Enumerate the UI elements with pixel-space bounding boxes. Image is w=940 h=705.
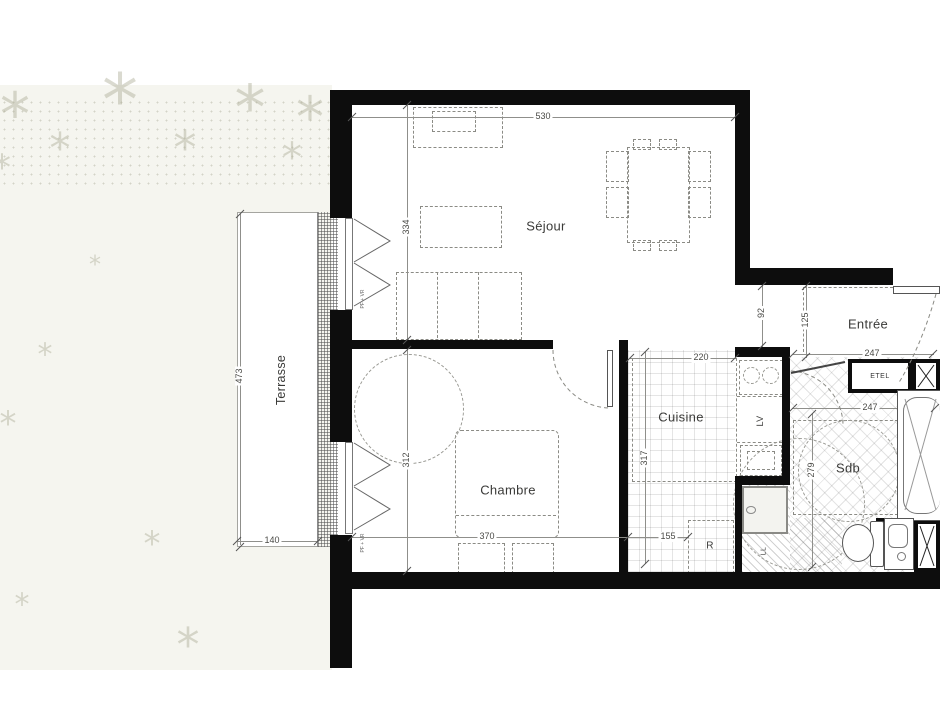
sofa-seat-divider	[437, 272, 438, 338]
vegetation-symbol: *	[144, 533, 161, 557]
bathtub-inner	[903, 397, 940, 514]
door-arc	[553, 350, 611, 408]
room-label-chambre: Chambre	[480, 483, 536, 498]
dining-chair	[659, 240, 677, 251]
fridge-label: R	[706, 541, 714, 552]
dining-chair	[688, 187, 711, 218]
chambre-door-leaf	[607, 350, 613, 407]
nightstand	[458, 543, 505, 574]
dining-chair	[606, 151, 629, 182]
vegetation-symbol: *	[174, 132, 197, 164]
dim-label-cuisine-width: 220	[691, 353, 710, 363]
dim-label-passage: 92	[757, 306, 767, 320]
washer-label: LL	[761, 547, 768, 555]
vegetation-symbol: *	[0, 155, 11, 180]
room-label-cuisine: Cuisine	[658, 410, 703, 425]
dim-label-terrasse-width: 140	[262, 536, 281, 546]
vegetation-symbol: *	[0, 94, 30, 136]
dim-label-sdb-width: 247	[860, 403, 879, 413]
room-label-terrasse: Terrasse	[274, 355, 288, 405]
washbasin-drain	[897, 552, 906, 561]
room-label-sejour: Séjour	[526, 219, 565, 234]
vegetation-symbol: *	[296, 98, 324, 137]
dim-label-cuisine-depth: 317	[640, 448, 650, 467]
tv-set	[432, 111, 476, 132]
vegetation-symbol: *	[235, 86, 266, 129]
toilet-bowl	[842, 524, 874, 562]
window-swing	[354, 487, 390, 530]
room-label-sdb: Sdb	[836, 461, 860, 476]
dim-label-sdb-depth: 279	[807, 460, 817, 479]
dim-label-entree-width: 247	[862, 349, 881, 359]
vegetation-symbol: *	[50, 133, 71, 162]
wall-segment	[352, 572, 940, 589]
sofa-seat-divider	[478, 272, 479, 338]
dim-label-fridge-width: 155	[658, 532, 677, 542]
entrance-door-leaf	[893, 286, 940, 294]
wall-segment	[330, 535, 352, 668]
french-door-frame	[345, 218, 353, 310]
wall-segment	[735, 268, 893, 285]
dim-label-terrasse-depth: 473	[235, 366, 245, 385]
room-label-entree: Entrée	[848, 317, 888, 332]
dishwasher-label: LV	[755, 416, 765, 427]
entree-zone-line	[803, 287, 893, 288]
nightstand	[512, 543, 554, 574]
counter-divider	[737, 396, 782, 397]
vegetation-symbol: *	[38, 345, 53, 366]
dining-chair	[688, 151, 711, 182]
dim-label-sejour-depth: 334	[402, 217, 412, 236]
dining-chair	[633, 240, 651, 251]
etel-label: ETEL	[870, 373, 890, 380]
wall-segment	[352, 340, 553, 349]
french-door-frame	[345, 442, 353, 534]
duct-shaft	[914, 520, 940, 572]
dimension-line	[812, 413, 813, 568]
wall-segment	[330, 90, 750, 105]
turning-circle	[354, 354, 464, 464]
washbasin-bowl	[888, 524, 908, 548]
duct-shaft	[912, 359, 940, 393]
wall-segment	[330, 310, 352, 442]
dim-label-entree-depth: 125	[801, 310, 811, 329]
dining-chair	[633, 139, 651, 150]
dim-label-chambre-depth: 312	[402, 450, 412, 469]
vegetation-symbol: *	[15, 595, 30, 616]
dim-label-sejour-width: 530	[533, 112, 552, 122]
sofa	[396, 272, 522, 340]
dim-label-chambre-width: 370	[477, 532, 496, 542]
wall-segment	[735, 90, 750, 270]
coffee-table	[420, 206, 502, 248]
sink-bowl	[743, 367, 760, 384]
dining-chair	[659, 139, 677, 150]
window-swing	[354, 219, 390, 262]
vegetation-symbol: *	[89, 257, 101, 274]
floor-plan: **************** Terrasse 473 140 ETEL S…	[0, 0, 940, 705]
dining-table	[627, 147, 690, 243]
wall-segment	[735, 485, 742, 572]
bed-cover-line	[456, 515, 556, 516]
vegetation-symbol: *	[177, 629, 200, 661]
window-note: PF + VR	[360, 533, 366, 552]
wall-segment	[735, 476, 790, 485]
window-note: PF + VR	[360, 289, 366, 308]
vegetation-symbol: *	[0, 413, 17, 437]
dining-chair	[606, 187, 629, 218]
vegetation-symbol: *	[102, 75, 138, 125]
sink-bowl	[762, 367, 779, 384]
vegetation-symbol: *	[282, 144, 302, 172]
wall-segment	[782, 347, 790, 482]
etel-closet: ETEL	[848, 359, 912, 393]
wall-segment	[330, 90, 352, 218]
